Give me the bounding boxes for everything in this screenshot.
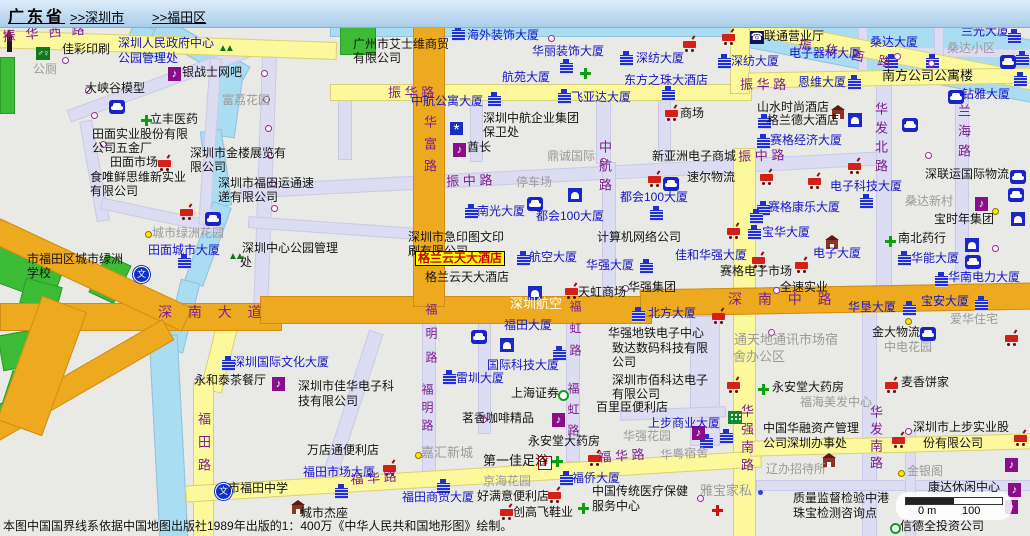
poi-label: 金大物流 xyxy=(872,326,920,339)
poi-label: 雅宝家私 xyxy=(700,484,752,497)
poi-label: 银战士网吧 xyxy=(182,66,242,79)
poi-label: 份有限公司 xyxy=(923,437,983,450)
car-icon xyxy=(902,118,918,132)
poi-label: 都会100大厦 xyxy=(536,210,604,223)
poi-label: 华南电力大厦 xyxy=(948,271,1020,284)
poi-label: 福田商贸大厦 xyxy=(402,491,474,504)
cart-icon xyxy=(795,262,808,269)
poi-label: 市福田区城市绿洲 xyxy=(27,253,123,266)
street-shape xyxy=(253,40,277,304)
poi-label: 电子科技大厦 xyxy=(830,180,902,193)
road-label: 福虹路 xyxy=(568,300,581,366)
scale-bar: 0 m 100 xyxy=(896,492,1012,520)
music-icon xyxy=(1005,458,1018,472)
poi-label: 全速实业 xyxy=(780,281,828,294)
poi-label: 大峡谷模型 xyxy=(85,82,145,95)
poi-label: 公司五金厂 xyxy=(92,142,152,155)
cart-icon xyxy=(727,382,740,389)
breadcrumb-header: 广东省 >>深圳市 >>福田区 xyxy=(0,0,1030,28)
poi-label: 处 xyxy=(240,256,252,269)
poi-label: 南光大厦 xyxy=(477,205,525,218)
poi-label: 质量监督检验中港 xyxy=(793,492,889,505)
crossR-icon xyxy=(712,505,723,516)
poi-label: 航空大厦 xyxy=(529,251,577,264)
car-icon xyxy=(663,177,679,191)
poi-label: 辽办招待所 xyxy=(766,463,826,476)
poi-label: 金银阁 xyxy=(907,465,943,478)
bld-icon xyxy=(178,258,191,269)
cart-icon xyxy=(727,228,740,235)
poi-label: 赛格经济大厦 xyxy=(770,134,842,147)
cart-icon xyxy=(848,163,861,170)
poi-label: 福田大厦 xyxy=(504,319,552,332)
cart-icon xyxy=(885,382,898,389)
poi-label: 服务中心 xyxy=(592,500,640,513)
bld-icon xyxy=(748,229,761,240)
poi-label: 深圳国际文化大厦 xyxy=(233,356,329,369)
poi-label: 中国华融资产管理 xyxy=(763,422,859,435)
poi-label: 福海美发中心 xyxy=(800,396,872,409)
bld-icon xyxy=(935,276,948,287)
poi-label: 华强地铁电子中心 xyxy=(608,327,704,340)
poi-label: 创高飞鞋业 xyxy=(513,506,573,519)
bld-icon xyxy=(975,300,988,311)
poi-label: 保卫处 xyxy=(483,126,519,139)
poi-label: 电子器材大厦 xyxy=(789,47,861,60)
poi-label: 北方大厦 xyxy=(648,307,696,320)
poi-label: 限公司 xyxy=(190,161,226,174)
cart-icon xyxy=(548,492,561,499)
poi-label: 南方公司公寓楼 xyxy=(882,69,973,82)
road-label: 福明路 xyxy=(424,303,437,375)
poi-label: 格兰云天大酒店 xyxy=(425,271,509,284)
hotel-icon xyxy=(848,113,862,127)
poi-label: 珠宝检测咨询点 xyxy=(793,507,877,520)
music-icon xyxy=(1008,483,1021,497)
water-shape xyxy=(149,334,189,536)
poi-label: 赛格电子市场 xyxy=(720,265,792,278)
poi-label: 商场 xyxy=(680,107,704,120)
poi-label: 京海花园 xyxy=(483,475,531,488)
crossG-icon xyxy=(578,503,589,514)
poi-label: 公司深圳办事处 xyxy=(763,437,847,450)
road-label: 深 南 中 路 xyxy=(728,293,838,306)
poi-label: 速尔物流 xyxy=(687,171,735,184)
cart-icon xyxy=(180,209,193,216)
poi-label: 有限公司 xyxy=(353,52,401,65)
school-icon xyxy=(133,266,150,283)
poi-label: 茗香咖啡精品 xyxy=(462,412,534,425)
poi-label: 华强集团 xyxy=(628,281,676,294)
bld-icon xyxy=(750,213,763,224)
poi-label: 递有限公司 xyxy=(218,191,278,204)
poi-label: 计算机网络公司 xyxy=(597,231,681,244)
poi-label: 富荔花园 xyxy=(222,94,270,107)
poi-label: 永安堂大药房 xyxy=(772,381,844,394)
poi-label: 海外装饰大厦 xyxy=(467,29,539,42)
poi-label: 新亚洲电子商城 xyxy=(652,150,736,163)
crossG-icon xyxy=(580,68,591,79)
bld-icon xyxy=(620,55,633,66)
dotB-icon xyxy=(758,490,763,495)
bld-icon xyxy=(1008,33,1021,44)
bld-icon xyxy=(443,374,456,385)
bld-icon xyxy=(558,93,571,104)
dotP-icon xyxy=(265,125,272,132)
map-attribution: 本图中国国界线系依据中国地图出版社1989年出版的1：400万《中华人民共和国地… xyxy=(3,517,512,534)
poi-label: 好满意便利店 xyxy=(477,490,549,503)
poi-label: 华强花园 xyxy=(623,430,671,443)
poi-label: 有限公司 xyxy=(90,185,138,198)
scale-zero-label: 0 m xyxy=(918,505,936,517)
highlighted-poi-label[interactable]: 格兰云天大酒店 xyxy=(415,251,505,266)
water-shape xyxy=(330,27,762,37)
bld-icon xyxy=(452,30,465,41)
poi-label: 深联运国际物流 xyxy=(925,168,1009,181)
poi-label: 深纺大厦 xyxy=(636,52,684,65)
poi-label: 公厕 xyxy=(33,63,57,76)
poi-label: 深纺大厦 xyxy=(731,55,779,68)
poi-label: 万店通便利店 xyxy=(307,444,379,457)
road-label: 福明路 xyxy=(420,383,433,437)
poi-label: 百里臣便利店 xyxy=(596,401,668,414)
poi-label: 永和泰茶餐厅 xyxy=(194,374,266,387)
dotP-icon xyxy=(905,428,912,435)
crossG-icon xyxy=(552,456,563,467)
poi-label: 公司 xyxy=(612,356,636,369)
poi-label: 上海证券 xyxy=(511,387,559,400)
poi-label: 深圳市佰科达电子 xyxy=(612,374,708,387)
car-icon xyxy=(1010,170,1026,184)
poi-label: 田面城市大厦 xyxy=(148,244,220,257)
hotel-icon xyxy=(500,338,514,352)
scale-bar-segments xyxy=(905,497,1003,505)
phone-icon xyxy=(750,31,764,44)
dotP-icon xyxy=(925,152,932,159)
car-icon xyxy=(1000,55,1016,69)
poi-label: 舍办公区 xyxy=(733,350,785,363)
breadcrumb-district-link[interactable]: >>福田区 xyxy=(152,7,206,26)
poi-label: 第一佳足浴 xyxy=(483,454,548,467)
poi-label: 桑达大厦 xyxy=(870,36,918,49)
poi-label: 鼎诚国际 xyxy=(547,150,595,163)
poi-label: 钻雅大厦 xyxy=(962,88,1010,101)
wc-icon xyxy=(36,47,50,60)
map-canvas[interactable]: 广东省 >>深圳市 >>福田区 振华西路振华西路振 华 路振 华 路中航路振 中… xyxy=(0,0,1030,536)
car-icon xyxy=(109,100,125,114)
road-label: 华富路 xyxy=(423,115,436,181)
bld-icon xyxy=(898,255,911,266)
poi-label: 深圳中心公园管理 xyxy=(242,242,338,255)
poi-label: 天虹商场 xyxy=(578,286,626,299)
bld-icon xyxy=(903,305,916,316)
poi-label: 都会100大厦 xyxy=(620,191,688,204)
music-icon xyxy=(168,67,181,81)
road-label: 振 华 路 xyxy=(740,78,786,91)
poi-label: 华粤宿舍 xyxy=(660,446,709,461)
cart-icon xyxy=(712,313,725,320)
green-shape xyxy=(0,57,15,114)
poi-label: 信德全投资公司 xyxy=(900,520,984,533)
gear-icon xyxy=(450,122,463,135)
poi-label: 中航公寓大厦 xyxy=(411,95,483,108)
cart-icon xyxy=(1005,335,1018,342)
poi-label: 中电花园 xyxy=(884,341,932,354)
poi-label: 停车场 xyxy=(516,176,552,189)
cart-icon xyxy=(760,174,773,181)
poi-label: 城市绿洲花园 xyxy=(152,227,224,240)
poi-label: 桑达小区 xyxy=(947,42,995,55)
dotY-icon xyxy=(905,318,912,325)
bld-icon xyxy=(720,433,733,444)
road-label: 华强南路 xyxy=(740,404,753,476)
scale-max-label: 100 xyxy=(962,505,980,517)
cart-icon xyxy=(722,34,735,41)
hotel-icon xyxy=(1011,212,1025,226)
poi-label: 深圳市上步实业股 xyxy=(913,421,1009,434)
bld-icon xyxy=(640,263,653,274)
road-label: 振 中 路 xyxy=(738,148,785,163)
poi-label: 爱华住宅 xyxy=(950,313,998,326)
poi-label: 宝安大厦 xyxy=(921,295,969,308)
poi-label: 南北药行 xyxy=(898,232,946,245)
poi-label: 深圳市福田运通速 xyxy=(218,177,314,190)
road-label: 深 南 大 道 xyxy=(158,306,268,319)
poi-label: 酋长 xyxy=(467,141,491,154)
car-icon xyxy=(471,330,487,344)
road-label: 中航路 xyxy=(598,140,611,197)
poi-label: 技有限公司 xyxy=(298,395,358,408)
poi-label: 立丰医药 xyxy=(150,113,198,126)
car-icon xyxy=(920,327,936,341)
hotel-icon xyxy=(965,238,979,252)
crossG-icon xyxy=(885,236,896,247)
poi-label: 深圳市金楼展览有 xyxy=(190,147,286,160)
poi-label: 深圳人民政府中心 xyxy=(118,37,214,50)
poi-label: 福田市场大厦 xyxy=(303,466,375,479)
bld-icon xyxy=(1014,76,1027,87)
bld-icon xyxy=(632,311,645,322)
poi-label: 通天地通讯市场宿 xyxy=(734,333,838,346)
poi-label: 雷圳大厦 xyxy=(456,372,504,385)
street-shape xyxy=(338,96,352,160)
poi-label: 深圳市急印图文印 xyxy=(408,231,504,244)
poi-label: 恩维大厦 xyxy=(798,76,846,89)
poi-label: 致达数码科技有限 xyxy=(612,342,708,355)
music-icon xyxy=(552,413,565,427)
road-label: 兰海路 xyxy=(957,104,970,164)
poi-label: 佳彩印刷 xyxy=(62,43,110,56)
music-icon xyxy=(272,377,285,391)
hotel-icon xyxy=(568,188,582,202)
dotY-icon xyxy=(145,231,152,238)
bld-icon xyxy=(848,79,861,90)
poi-label: 深圳中航企业集团 xyxy=(483,112,579,125)
dotP-icon xyxy=(261,70,268,77)
dotP-icon xyxy=(928,60,935,67)
car-icon xyxy=(205,212,221,226)
poi-label: 市福田中学 xyxy=(228,482,288,495)
car-icon xyxy=(965,255,981,269)
bld-icon xyxy=(662,90,675,101)
cart-icon xyxy=(1014,435,1027,442)
road-label: 华发北路 xyxy=(874,102,887,178)
cart-icon xyxy=(808,178,821,185)
poi-label: 东方之珠大酒店 xyxy=(624,74,708,87)
bld-icon xyxy=(650,210,663,221)
poi-label: 广州市艾士维商贸 xyxy=(353,38,449,51)
cart-icon xyxy=(500,509,513,516)
cart-icon xyxy=(158,160,171,167)
poi-label: 格兰德大酒店 xyxy=(767,114,839,127)
cart-icon xyxy=(565,288,578,295)
poi-label: 电子大厦 xyxy=(813,247,861,260)
poi-label: 赛格康乐大厦 xyxy=(768,201,840,214)
poi-label: 永安堂大药房 xyxy=(528,435,600,448)
car-icon xyxy=(1008,188,1024,202)
poi-label: 深圳市佳华电子科 xyxy=(298,380,394,393)
bld-icon xyxy=(718,58,731,69)
dotY-icon xyxy=(898,470,905,477)
cart-icon xyxy=(752,257,765,264)
poi-label: 飞亚达大厦 xyxy=(571,91,631,104)
poi-label: 公园管理处 xyxy=(118,52,178,65)
poi-label: 华垦大厦 xyxy=(848,301,896,314)
orange-shape xyxy=(260,296,652,324)
bld-icon xyxy=(488,96,501,107)
poi-label: 食唯鲜思维新实业 xyxy=(90,171,186,184)
street-shape xyxy=(248,216,418,240)
poi-label: 深圳航空 xyxy=(510,297,562,310)
road-label: 福 华 路 xyxy=(598,448,645,464)
bld-icon xyxy=(860,198,873,209)
breadcrumb-city-link[interactable]: >>深圳市 xyxy=(70,7,124,26)
music-icon xyxy=(975,197,988,211)
bld-icon xyxy=(560,63,573,74)
cart-icon xyxy=(892,437,905,444)
breadcrumb-province-link[interactable]: 广东省 xyxy=(8,3,65,27)
poi-label: 学校 xyxy=(27,267,51,280)
poi-label: 联通营业厅 xyxy=(764,30,824,43)
bld-icon xyxy=(335,488,348,499)
dotP-icon xyxy=(271,205,278,212)
poi-label: 中国传统医疗保健 xyxy=(592,485,688,498)
poi-label: 嘉汇新城 xyxy=(421,446,473,459)
poi-label: 田面市场 xyxy=(110,156,158,169)
poi-label: 桑达新村 xyxy=(905,195,953,208)
dotP-icon xyxy=(91,112,98,119)
road-label: 振 中 路 xyxy=(446,173,493,188)
poi-label: 航苑大厦 xyxy=(502,71,550,84)
cart-icon xyxy=(665,110,678,117)
poi-label: 宝华大厦 xyxy=(762,226,810,239)
cart-icon xyxy=(648,176,661,183)
poi-label: 麦香饼家 xyxy=(901,376,949,389)
poi-label: 华能大厦 xyxy=(911,252,959,265)
music-icon xyxy=(453,143,466,157)
poi-label: 佳和华强大厦 xyxy=(675,249,747,262)
poi-label: 田面实业股份有限 xyxy=(92,128,188,141)
poi-label: 宝时年集团 xyxy=(934,213,994,226)
dotP-icon xyxy=(548,35,555,42)
trees-icon xyxy=(218,44,232,54)
road-label: 福田路 xyxy=(197,412,210,481)
poi-label: 华强大厦 xyxy=(586,259,634,272)
bld-icon xyxy=(1016,55,1029,66)
cart-icon xyxy=(683,41,696,48)
poi-label: 华丽装饰大厦 xyxy=(532,45,604,58)
poi-label: 上步商业大厦 xyxy=(648,417,720,430)
crossG-icon xyxy=(758,384,769,395)
dotP-icon xyxy=(62,57,69,64)
dotP-icon xyxy=(992,245,999,252)
road-label: 华发南路 xyxy=(869,405,882,473)
